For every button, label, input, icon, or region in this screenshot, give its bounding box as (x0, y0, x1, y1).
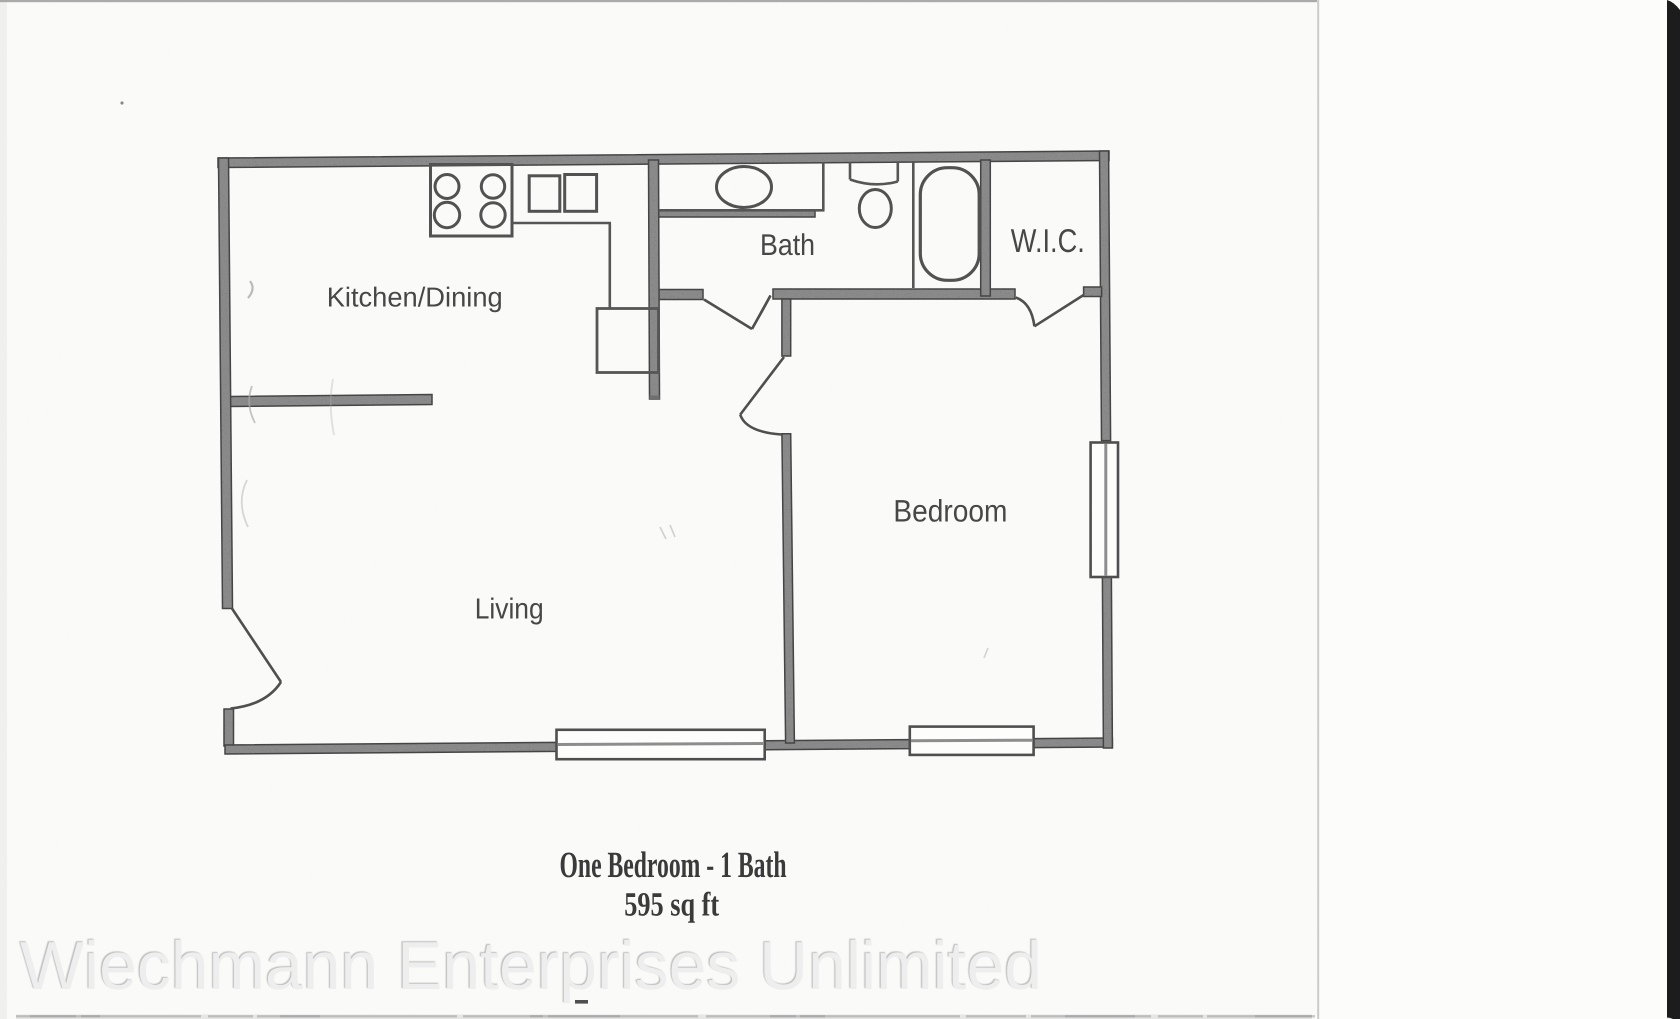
svg-text:595 sq ft: 595 sq ft (624, 887, 720, 924)
svg-text:Living: Living (475, 594, 544, 626)
svg-text:Bedroom: Bedroom (893, 494, 1007, 529)
svg-text:Kitchen/Dining: Kitchen/Dining (327, 282, 503, 313)
svg-text:Bath: Bath (760, 229, 815, 262)
svg-text:W.I.C.: W.I.C. (1011, 222, 1085, 259)
svg-text:Wiechmann Enterprises Unlimite: Wiechmann Enterprises Unlimited (20, 928, 1042, 1004)
svg-text:One Bedroom - 1 Bath: One Bedroom - 1 Bath (560, 845, 787, 886)
